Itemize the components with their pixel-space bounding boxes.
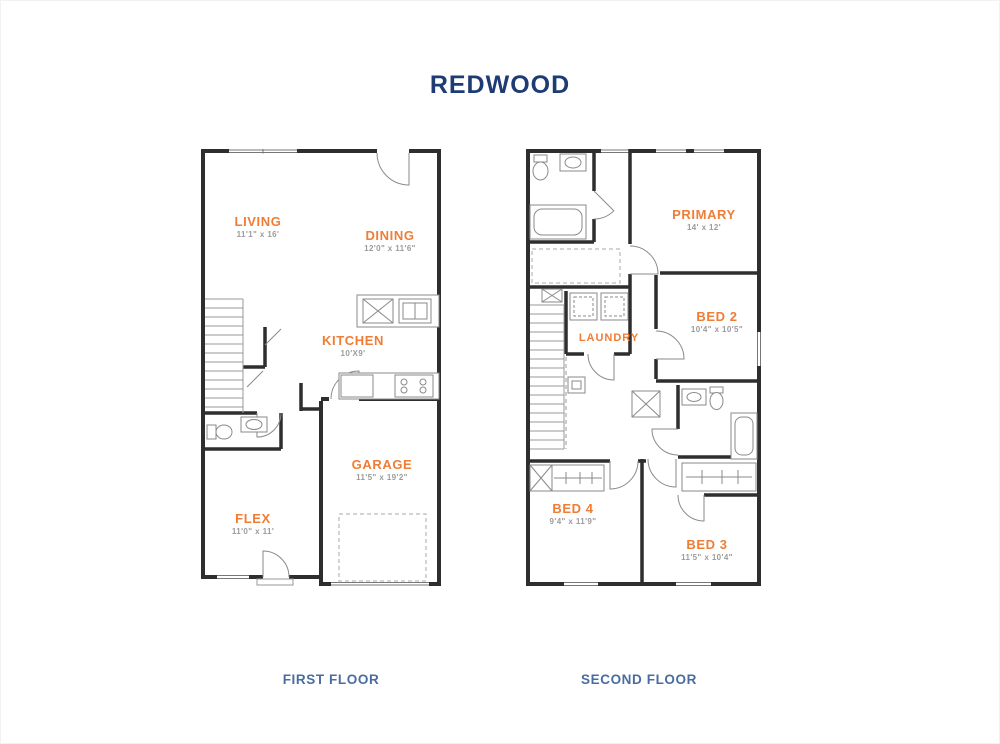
first-floor-plan: LIVING 11'1" x 16' DINING 12'0" x 11'6" … [201,149,441,586]
toilet-icon [533,162,548,180]
room-label-laundry: LAUNDRY [579,332,639,344]
attic-access [632,391,660,417]
bed3-closet [682,463,756,491]
bathtub-icon [735,417,753,455]
garage-parking-pad [339,514,426,581]
toilet-icon [216,425,232,439]
second-floor-caption: SECOND FLOOR [581,672,697,687]
stairs [205,299,243,413]
refrigerator-icon [341,375,373,397]
primary-bath-fixtures [530,154,586,239]
door-swings [588,191,704,521]
room-label-bed2: BED 2 10'4" x 10'5" [691,309,743,334]
floor-plan-page: REDWOOD [0,0,1000,744]
water-heater-icon [568,377,585,393]
bathtub-icon [534,209,582,235]
room-label-kitchen: KITCHEN 10'X9' [322,333,384,358]
room-label-primary: PRIMARY 14' x 12' [672,207,736,232]
room-label-bed4: BED 4 9'4" x 11'9" [550,501,597,526]
second-floor-plan: PRIMARY 14' x 12' BED 2 10'4" x 10'5" LA… [526,149,761,586]
toilet-icon [710,393,723,410]
room-label-bed3: BED 3 11'5" x 10'4" [681,537,733,562]
kitchen-island [357,295,439,327]
sink-icon [246,420,262,430]
room-label-living: LIVING 11'1" x 16' [235,214,282,239]
kitchen-counter [339,373,439,399]
room-label-flex: FLEX 11'0" x 11' [232,511,274,536]
stove-icon [395,375,433,397]
first-floor-caption: FIRST FLOOR [283,672,380,687]
powder-room-fixtures [207,417,267,439]
porch-step [257,579,293,585]
page-title: REDWOOD [1,71,999,100]
room-label-garage: GARAGE 11'5" x 19'2" [352,457,413,482]
bed4-closet [530,465,604,491]
room-label-dining: DINING 12'0" x 11'6" [364,228,416,253]
toilet-icon [534,155,547,162]
sink-icon [687,393,701,402]
hall-bath-fixtures [682,387,757,459]
stairs [530,305,566,449]
toilet-icon [207,425,216,439]
sink-icon [565,157,581,168]
